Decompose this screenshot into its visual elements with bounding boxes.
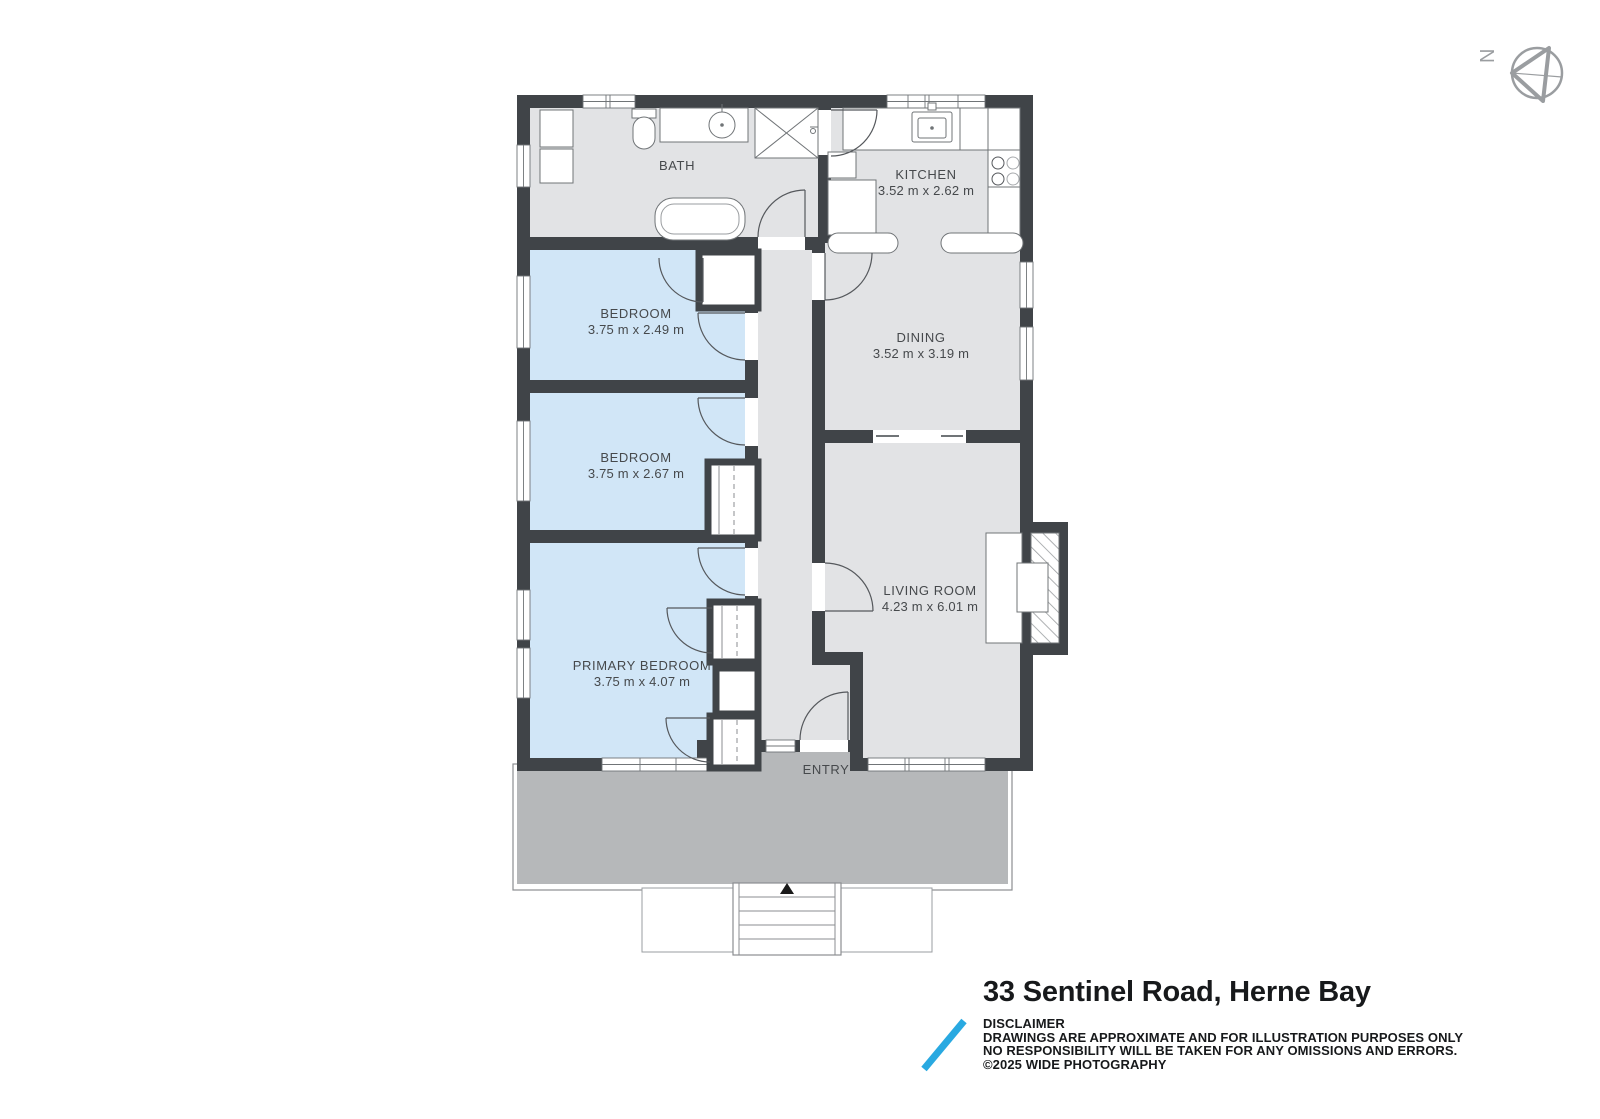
primary-bedroom-label: PRIMARY BEDROOM 3.75 m x 4.07 m bbox=[573, 658, 712, 690]
floorplan-page: N BATH KITCHEN 3.52 m x 2.62 m BEDROOM 3… bbox=[0, 0, 1600, 1119]
bath-cabinet bbox=[540, 110, 573, 147]
bathtub-icon bbox=[655, 198, 745, 240]
entry-label: ENTRY bbox=[803, 762, 850, 778]
primary-wardrobe-a bbox=[710, 602, 758, 662]
disclaimer-heading: DISCLAIMER bbox=[983, 1017, 1463, 1031]
bedroom2-label: BEDROOM 3.75 m x 2.67 m bbox=[588, 450, 684, 482]
copyright-line: ©2025 WIDE PHOTOGRAPHY bbox=[983, 1058, 1463, 1072]
property-address-title: 33 Sentinel Road, Herne Bay bbox=[983, 976, 1371, 1009]
firebox bbox=[1017, 563, 1048, 612]
disclaimer-block: DISCLAIMER DRAWINGS ARE APPROXIMATE AND … bbox=[983, 1017, 1463, 1071]
hallway-floor-lower bbox=[758, 652, 850, 752]
disclaimer-line: DRAWINGS ARE APPROXIMATE AND FOR ILLUSTR… bbox=[983, 1031, 1463, 1045]
compass-north-label: N bbox=[1477, 49, 1499, 63]
kitchen-label: KITCHEN 3.52 m x 2.62 m bbox=[878, 167, 974, 199]
vanity-sink-icon bbox=[660, 104, 748, 142]
dining-label: DINING 3.52 m x 3.19 m bbox=[873, 330, 969, 362]
kitchen-dining-opening-bar bbox=[828, 233, 898, 253]
bedroom2-wardrobe bbox=[708, 462, 758, 538]
disclaimer-line: NO RESPONSIBILITY WILL BE TAKEN FOR ANY … bbox=[983, 1044, 1463, 1058]
north-compass-icon: N bbox=[1477, 48, 1562, 101]
shower-icon bbox=[755, 108, 818, 158]
bath-cabinet bbox=[540, 149, 573, 183]
floorplan-drawing: N bbox=[0, 0, 1600, 1119]
fridge-space bbox=[828, 180, 876, 235]
brand-slash-icon bbox=[924, 1021, 964, 1069]
front-steps bbox=[733, 883, 841, 955]
bedroom1-closet bbox=[699, 252, 758, 308]
bedroom1-label: BEDROOM 3.75 m x 2.49 m bbox=[588, 306, 684, 338]
hallway-niche bbox=[716, 668, 758, 714]
kitchen-dining-opening-bar bbox=[941, 233, 1023, 253]
deck-porch bbox=[513, 752, 1012, 955]
fireplace bbox=[986, 533, 1059, 643]
primary-wardrobe-b bbox=[710, 716, 758, 768]
hallway-floor bbox=[758, 250, 812, 665]
living-room-label: LIVING ROOM 4.23 m x 6.01 m bbox=[882, 583, 978, 615]
bath-label: BATH bbox=[659, 158, 695, 174]
toilet-icon bbox=[632, 109, 656, 149]
